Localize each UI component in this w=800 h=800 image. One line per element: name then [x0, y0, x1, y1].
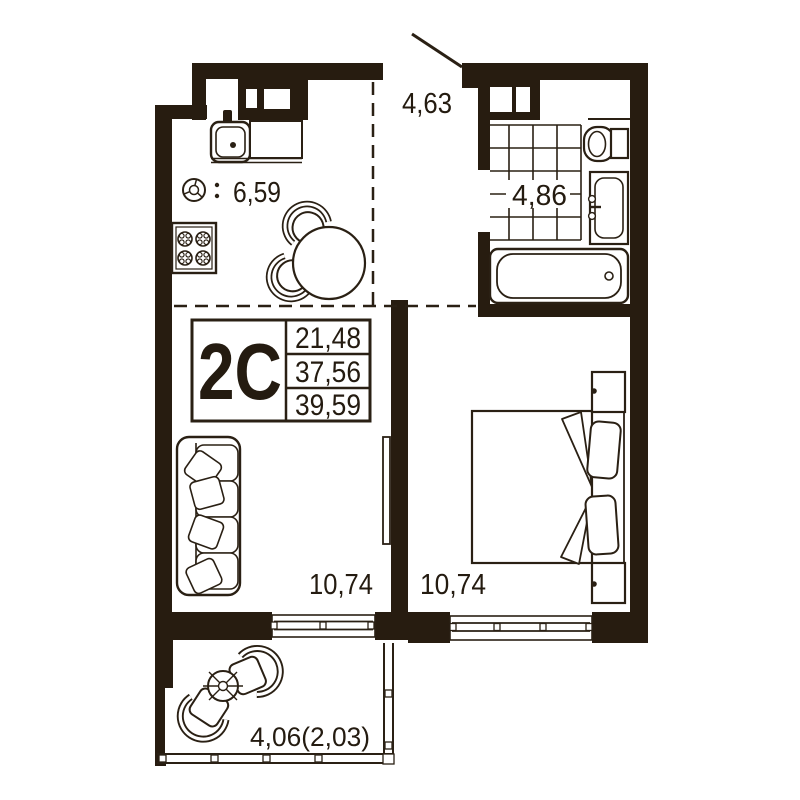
washbasin-icon	[589, 172, 628, 244]
vent-niche	[206, 79, 238, 120]
sofa-icon	[177, 437, 240, 595]
bed-pillow	[587, 421, 622, 479]
vent-niche	[264, 89, 290, 109]
unit-type-label: 2C	[198, 327, 282, 416]
bathtub-icon	[490, 249, 628, 303]
bathroom-bedroom-wall	[478, 304, 648, 317]
unit-info-box: 2C 21,48 37,56 39,59	[192, 320, 370, 422]
bedroom-window-icon	[450, 612, 592, 643]
top-wall-right	[462, 63, 648, 80]
hallway-area-label: 4,63	[402, 88, 452, 120]
nightstand-icon	[591, 563, 625, 603]
living-bedroom-wall	[391, 300, 408, 640]
bed-icon	[472, 411, 624, 564]
bathroom-area-label: 4,86	[512, 180, 567, 212]
kitchen-area-label: 6,59	[233, 177, 281, 209]
balcony-wall-thin	[155, 688, 165, 755]
floor-plan: 6,59 4,63 4,86	[0, 0, 800, 800]
hallway: 4,63	[402, 88, 452, 120]
vent-niche	[516, 87, 530, 112]
extractor-fan-icon	[183, 179, 219, 201]
unit-area-row: 39,59	[295, 389, 361, 422]
balcony-wall-thick	[155, 640, 173, 688]
bed-pillow	[585, 495, 619, 555]
tv-icon	[383, 437, 390, 544]
nightstand-icon	[591, 372, 625, 412]
unit-area-row: 37,56	[295, 356, 361, 389]
living-room-window-icon	[271, 612, 375, 640]
left-wall	[155, 105, 172, 640]
unit-area-row: 21,48	[295, 322, 361, 355]
balcony-area-label: 4,06(2,03)	[250, 722, 370, 752]
balcony: 4,06(2,03)	[157, 641, 394, 764]
entry-door-swing	[412, 34, 462, 67]
stove-icon	[172, 223, 216, 273]
living-room: 10,74	[177, 437, 390, 601]
bathroom: 4,86	[490, 119, 630, 303]
living-room-area-label: 10,74	[309, 569, 373, 601]
vent-niche	[489, 87, 512, 112]
bedroom-area-label: 10,74	[420, 569, 486, 601]
dining-table-icon	[260, 196, 365, 308]
bathroom-wall-upper	[478, 78, 490, 170]
kitchen: 6,59	[172, 110, 365, 308]
bedroom: 10,74	[420, 372, 625, 603]
toilet-icon	[584, 127, 628, 161]
right-wall	[630, 63, 648, 643]
vent-niche	[246, 89, 257, 108]
floor-plan-page: 6,59 4,63 4,86	[0, 0, 800, 800]
